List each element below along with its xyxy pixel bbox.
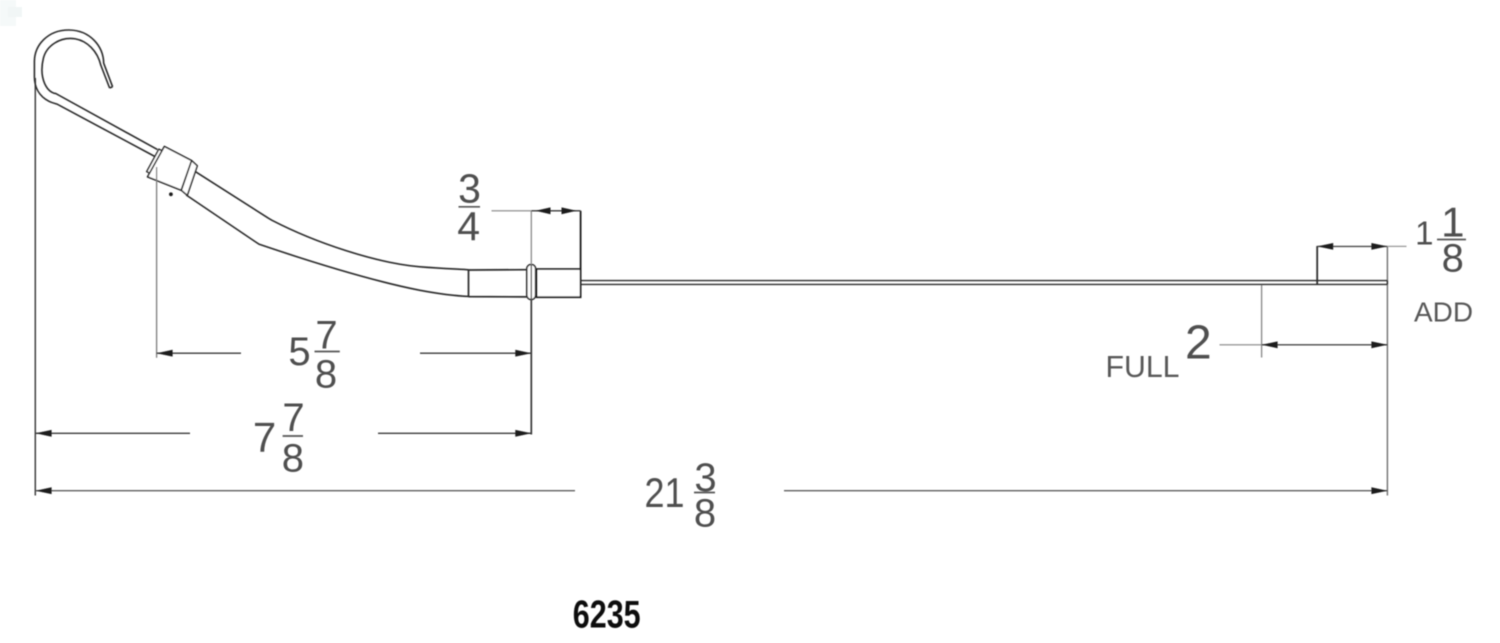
svg-text:6235: 6235 bbox=[573, 593, 641, 636]
svg-text:1: 1 bbox=[1415, 214, 1433, 251]
svg-text:7: 7 bbox=[282, 396, 304, 440]
svg-text:8: 8 bbox=[1442, 237, 1464, 281]
svg-text:5: 5 bbox=[288, 330, 310, 374]
svg-text:FULL: FULL bbox=[1106, 349, 1180, 384]
svg-text:4: 4 bbox=[457, 203, 480, 249]
svg-text:ADD: ADD bbox=[1414, 296, 1473, 327]
svg-text:8: 8 bbox=[315, 352, 337, 396]
svg-text:21: 21 bbox=[645, 469, 685, 516]
svg-text:8: 8 bbox=[282, 437, 304, 481]
svg-text:7: 7 bbox=[253, 414, 276, 461]
svg-text:8: 8 bbox=[694, 492, 716, 536]
svg-text:2: 2 bbox=[1185, 317, 1212, 370]
